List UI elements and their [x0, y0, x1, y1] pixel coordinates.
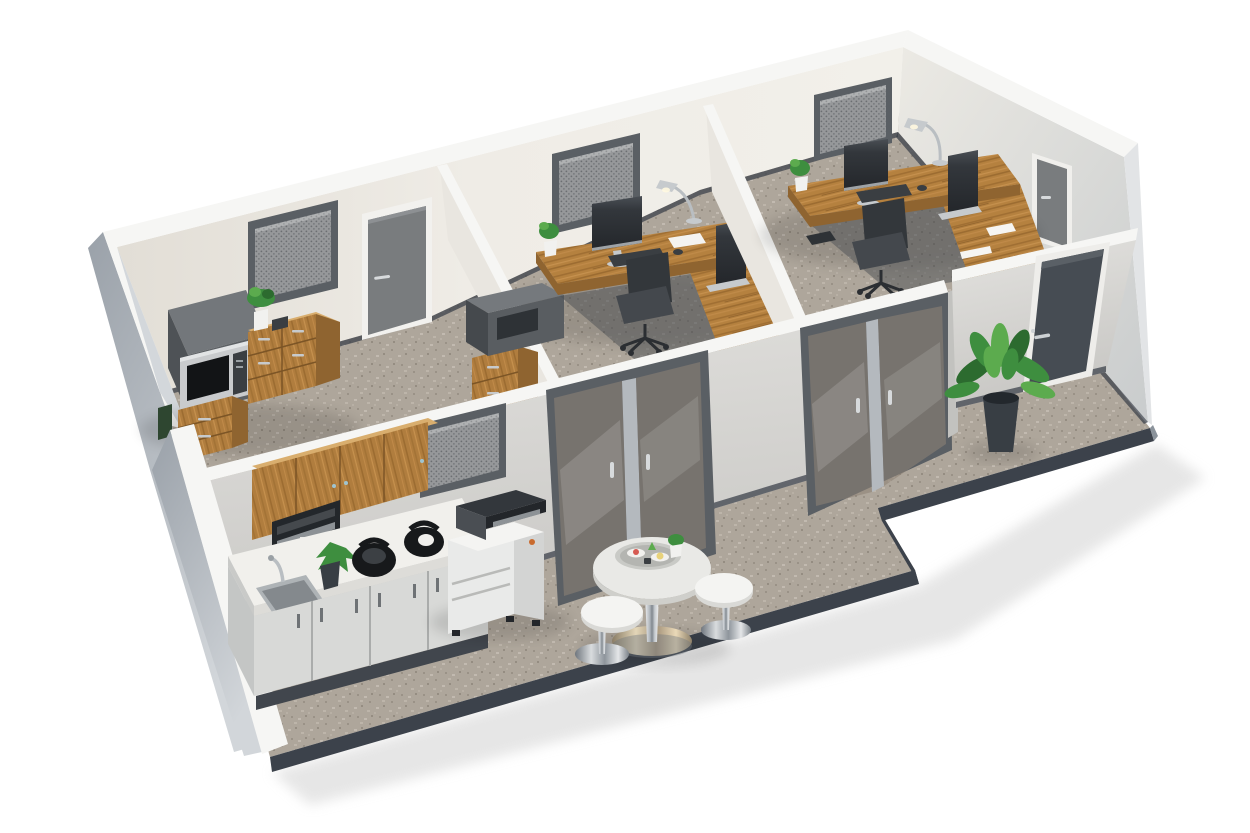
- office1-mouse: [673, 249, 683, 255]
- door-handle: [646, 454, 650, 470]
- power-indicator: [529, 539, 535, 545]
- door-handle: [1041, 196, 1051, 199]
- door-handle: [610, 462, 614, 478]
- kettle-2: [404, 523, 444, 557]
- floorplan-svg: [0, 0, 1250, 833]
- door-handle: [856, 398, 860, 413]
- breakroom-door: [362, 197, 432, 340]
- office2-mouse: [917, 185, 927, 191]
- door-handle: [888, 390, 892, 405]
- floorplan-render: [0, 0, 1250, 833]
